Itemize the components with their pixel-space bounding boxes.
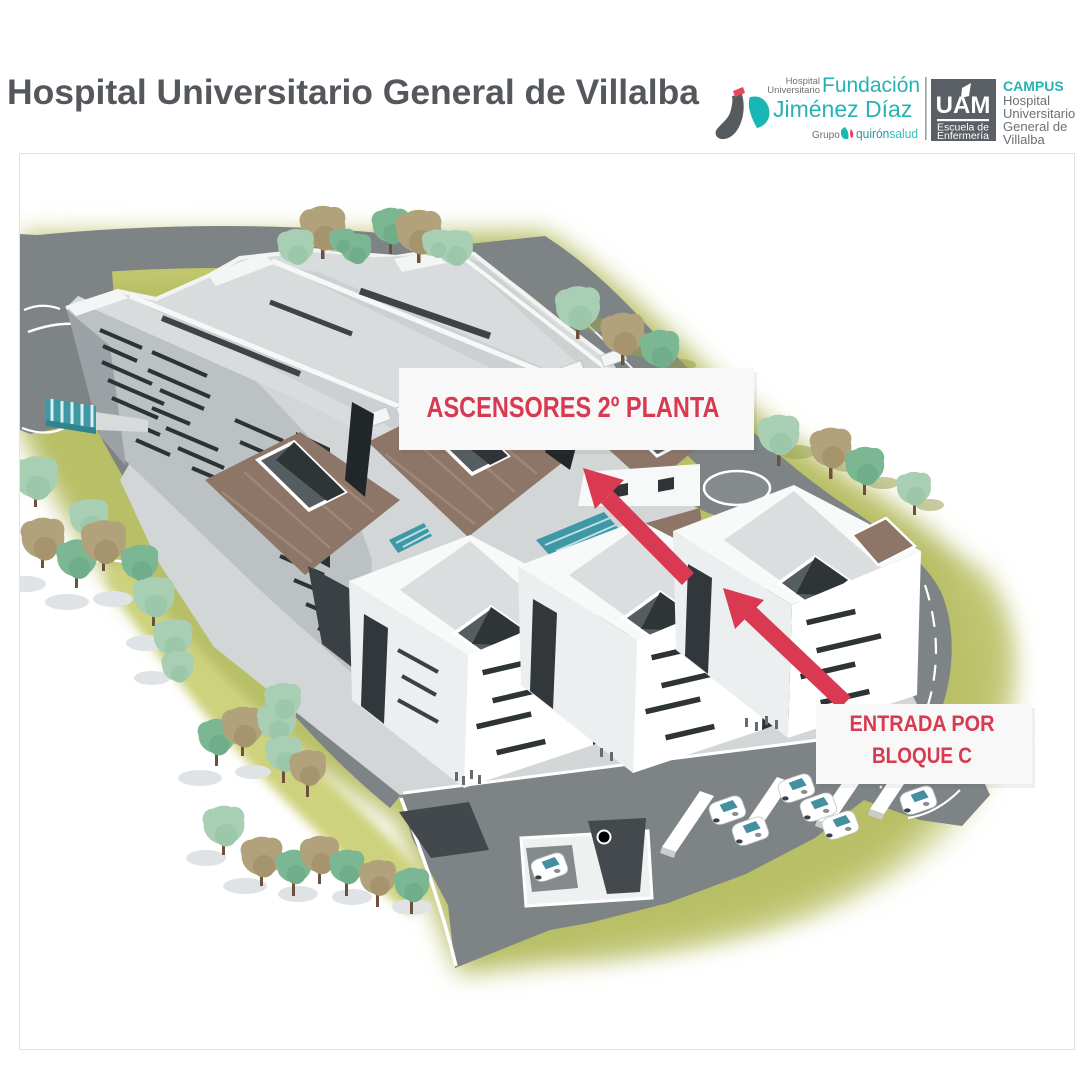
svg-text:Enfermería: Enfermería xyxy=(937,130,989,142)
svg-text:ASCENSORES 2º PLANTA: ASCENSORES 2º PLANTA xyxy=(427,392,720,424)
svg-text:quirónsalud: quirónsalud xyxy=(856,126,918,141)
svg-text:Fundación: Fundación xyxy=(822,74,920,97)
svg-text:Villalba: Villalba xyxy=(1003,132,1045,147)
svg-text:ENTRADA POR: ENTRADA POR xyxy=(850,711,995,736)
svg-text:Universitario: Universitario xyxy=(767,85,820,96)
svg-text:Jiménez Díaz: Jiménez Díaz xyxy=(773,96,912,122)
svg-text:Hospital Universitario General: Hospital Universitario General de Villal… xyxy=(7,72,699,112)
svg-text:Grupo: Grupo xyxy=(812,130,840,141)
svg-text:BLOQUE C: BLOQUE C xyxy=(872,743,972,768)
svg-text:CAMPUS: CAMPUS xyxy=(1003,78,1064,94)
